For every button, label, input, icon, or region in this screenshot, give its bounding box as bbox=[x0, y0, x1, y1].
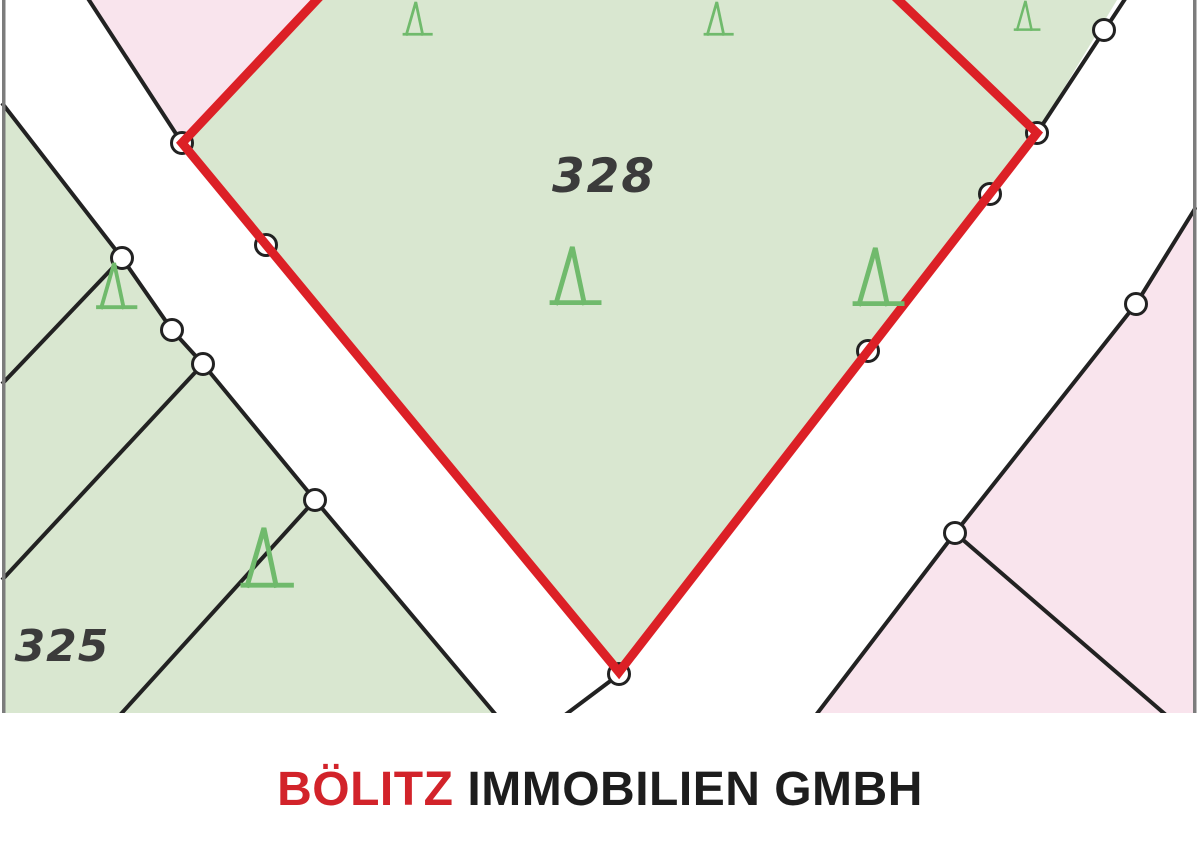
boundary-point bbox=[1126, 294, 1147, 315]
footer: BÖLITZIMMOBILIEN GMBH bbox=[0, 713, 1200, 851]
parcel-number-325: 325 bbox=[15, 621, 110, 672]
boundary-point bbox=[162, 320, 183, 341]
boundary-point bbox=[305, 490, 326, 511]
map-left-border bbox=[2, 0, 6, 713]
company-suffix: IMMOBILIEN GMBH bbox=[467, 763, 922, 816]
boundary-point bbox=[945, 523, 966, 544]
company-logo: BÖLITZIMMOBILIEN GMBH bbox=[277, 762, 923, 817]
page-background: 328 325 BÖLITZIMMOBILIEN GMBH bbox=[0, 0, 1200, 851]
map-right-border bbox=[1193, 0, 1197, 713]
boundary-point bbox=[1094, 20, 1115, 41]
parcel-number-328: 328 bbox=[552, 149, 656, 204]
brand-name: BÖLITZ bbox=[277, 763, 453, 816]
boundary-point bbox=[193, 354, 214, 375]
